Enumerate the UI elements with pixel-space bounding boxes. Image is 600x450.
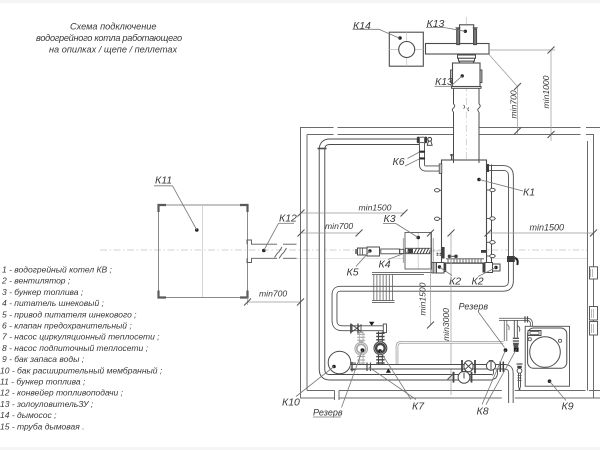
svg-text:8 - насос подпиточный тепло: 8 - насос подпиточный теплосети ; [2,343,149,353]
svg-text:К3: К3 [384,213,396,225]
svg-text:min1500: min1500 [418,282,428,315]
svg-text:min700: min700 [259,289,287,299]
svg-text:min3000: min3000 [441,308,451,341]
svg-text:К2: К2 [472,276,484,288]
svg-text:К13: К13 [427,18,445,30]
svg-text:min1500: min1500 [359,203,392,213]
svg-text:водогрейного котла работающе: водогрейного котла работающего [36,33,182,43]
svg-text:11 - бункер топлива ;: 11 - бункер топлива ; [0,377,86,387]
svg-text:3 - бункер топлива ;: 3 - бункер топлива ; [2,287,84,297]
svg-text:min1500: min1500 [530,223,565,233]
svg-text:5 - привод питателя шнеково: 5 - привод питателя шнекового ; [2,309,137,319]
svg-text:Резерв: Резерв [459,302,489,312]
svg-text:К8: К8 [477,406,489,418]
svg-text:К7: К7 [412,401,425,413]
svg-text:13 - золоуловительЗУ ;: 13 - золоуловительЗУ ; [0,399,94,409]
svg-text:min1000: min1000 [541,75,551,108]
svg-text:9 - бак запаса воды ;: 9 - бак запаса воды ; [2,354,85,364]
svg-text:Резерв: Резерв [313,408,343,418]
svg-text:К14: К14 [353,20,371,32]
svg-text:min700: min700 [509,90,519,118]
svg-text:К9: К9 [562,401,574,413]
svg-text:2 - вентилятор ;: 2 - вентилятор ; [1,276,71,286]
svg-text:10 - бак расширительный мемб: 10 - бак расширительный мембранный ; [0,365,163,375]
svg-text:12 - конвейер топливоподачи: 12 - конвейер топливоподачи ; [0,388,124,398]
svg-text:14 - дымосос ;: 14 - дымосос ; [0,410,57,420]
svg-text:К10: К10 [282,397,300,409]
svg-text:1 - водогрейный котел КВ ;: 1 - водогрейный котел КВ ; [2,265,113,275]
svg-text:на опилках / щепе / пеллетах: на опилках / щепе / пеллетах [49,44,178,54]
svg-text:К6: К6 [393,156,405,168]
svg-text:К1: К1 [523,187,535,199]
svg-text:min700: min700 [325,221,353,231]
svg-text:К4: К4 [379,259,391,271]
svg-text:6 - клапан предохранительны: 6 - клапан предохранительный ; [2,321,132,331]
svg-text:К5: К5 [347,267,359,279]
svg-text:К12: К12 [279,213,297,225]
svg-text:4 - питатель шнековый ;: 4 - питатель шнековый ; [2,298,105,308]
svg-text:7 - насос циркуляционный те: 7 - насос циркуляционный теплосети ; [2,332,160,342]
svg-text:К11: К11 [155,175,172,187]
svg-text:15 - труба дымовая .: 15 - труба дымовая . [0,421,85,431]
svg-text:Схема подключение: Схема подключение [70,22,157,32]
